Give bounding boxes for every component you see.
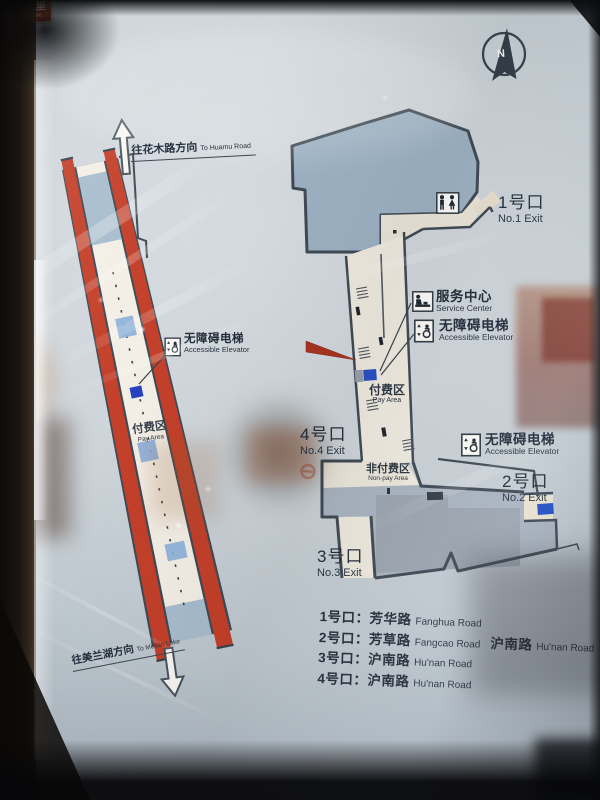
non-pay-area-label: 非付费区 Non-pay Area xyxy=(358,463,418,483)
exit2-elevator-marker xyxy=(537,503,554,515)
accessible-elevator-icon xyxy=(462,434,480,455)
corridor-elevator-marker xyxy=(363,369,377,381)
accessible-elevator-icon xyxy=(415,320,433,341)
exit-3-label: 3号口 No.3 Exit xyxy=(317,547,363,579)
station-map-photo: 往花木路方向To Huamu Road 往美兰湖方向To Meilan Lake… xyxy=(0,0,600,800)
service-center-label: 服务中心 Service Center xyxy=(436,289,492,314)
concourse-elevator-label: 无障碍电梯 Accessible Elevator xyxy=(439,318,513,343)
concourse-pay-area-label: 付费区 Pay Area xyxy=(364,384,410,405)
no-entry-reflection xyxy=(302,465,315,478)
you-are-here-callout: 您在这里 You are here xyxy=(0,0,52,23)
restroom-icon xyxy=(437,193,459,213)
platform-elevator-label: 无障碍电梯 Accessible Elevator xyxy=(184,333,249,354)
exit-1-label: 1号口 No.1 Exit xyxy=(498,193,544,225)
exit-4-label: 4号口 No.4 Exit xyxy=(300,425,346,457)
accessible-elevator-icon xyxy=(165,338,180,356)
east-elevator-label: 无障碍电梯 Accessible Elevator xyxy=(485,432,559,457)
compass-n-label: N xyxy=(497,48,506,61)
you-are-here-pointer xyxy=(306,341,356,360)
platform-strip xyxy=(61,149,234,662)
service-center-icon xyxy=(413,292,433,311)
upper-concourse xyxy=(292,110,501,252)
exit-2-label: 2号口 No.2 Exit xyxy=(502,472,548,504)
exit-legend: 1号口：芳华路Fanghua Road 2号口：芳草路Fangcao Road沪… xyxy=(317,605,595,697)
corridor-elevator-lobby xyxy=(355,370,364,383)
